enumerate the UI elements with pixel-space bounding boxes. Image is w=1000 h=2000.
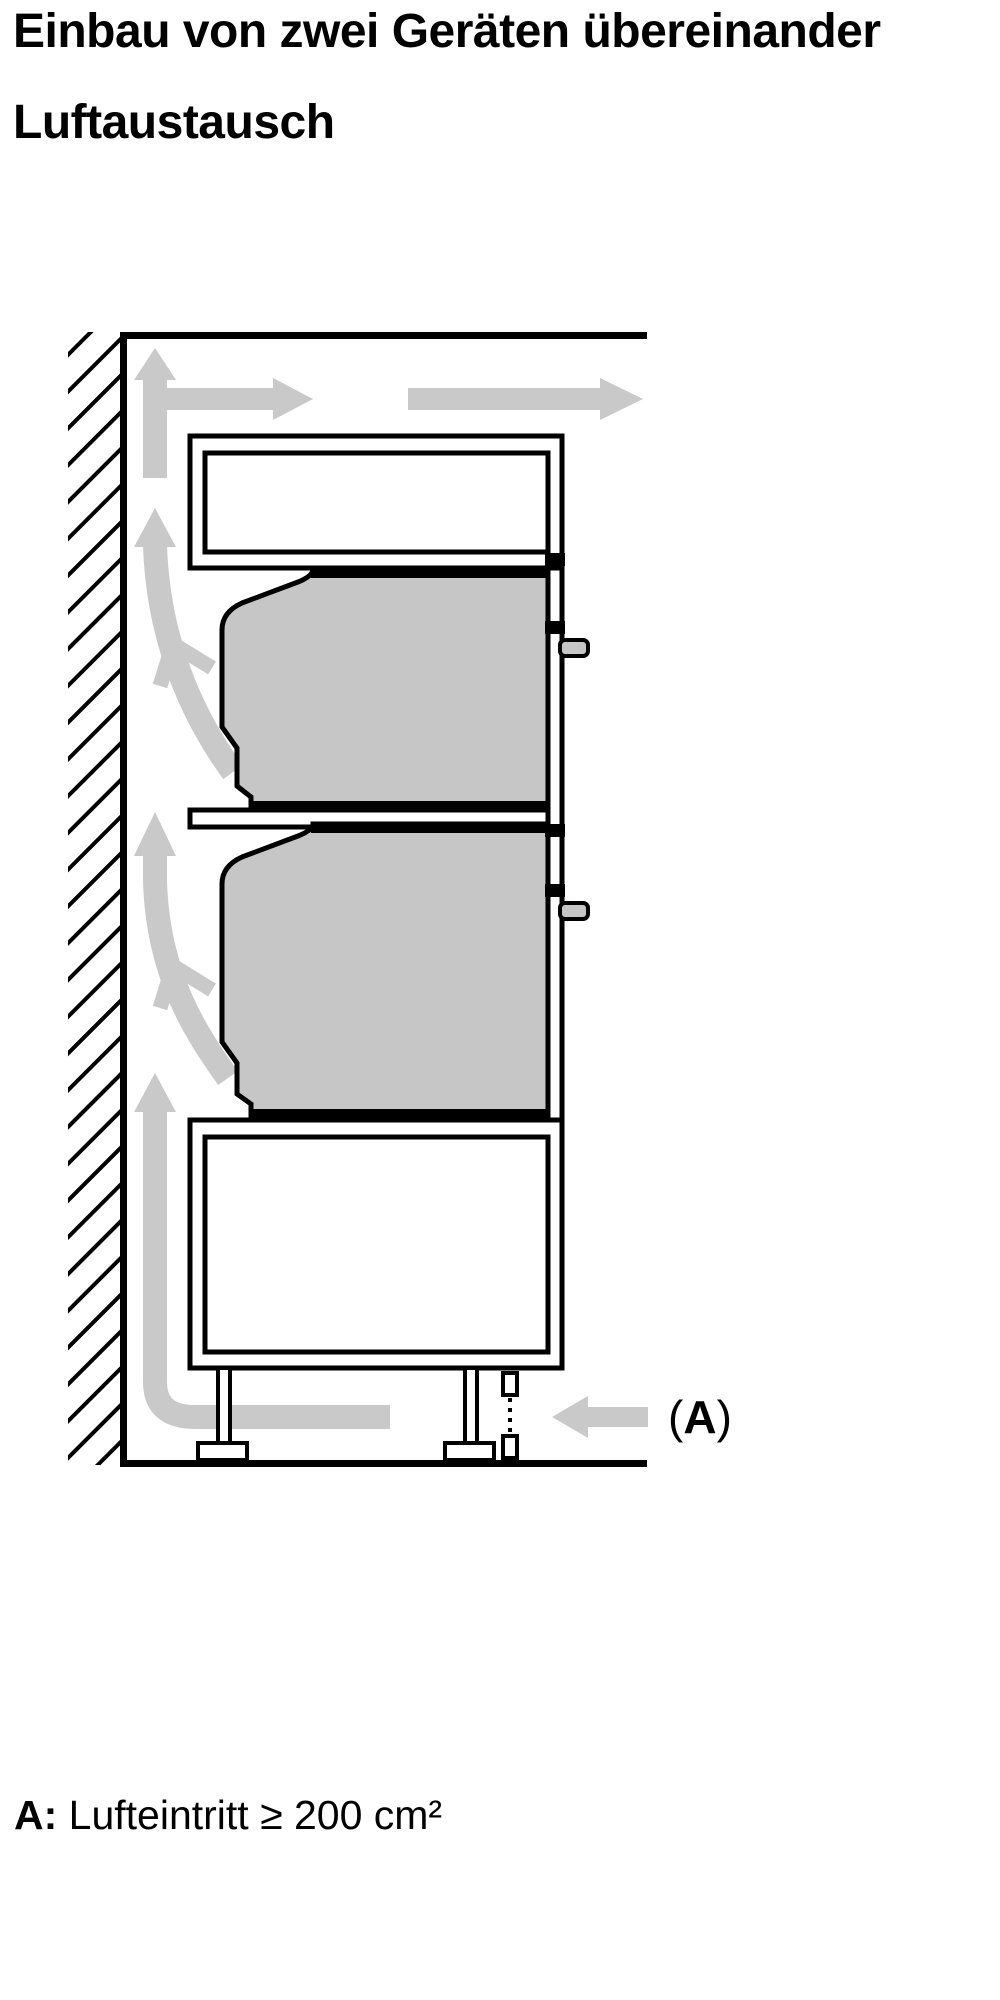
label-a-open-paren: ( bbox=[668, 1391, 683, 1443]
wall-hatching bbox=[68, 332, 120, 1465]
airflow-up-arrow-top bbox=[134, 348, 176, 478]
manual-page: Einbau von zwei Geräten übereinander Luf… bbox=[0, 0, 1000, 2000]
lower-oven bbox=[222, 824, 548, 1117]
upper-oven bbox=[222, 569, 548, 809]
legend-caption: A: Lufteintritt ≥ 200 cm² bbox=[14, 1792, 442, 1839]
legend-term: A: bbox=[14, 1792, 57, 1838]
mounting-bolt-upper bbox=[560, 640, 588, 656]
fixing-cap bbox=[545, 621, 565, 634]
air-inlet-arrow bbox=[552, 1396, 648, 1438]
air-inlet-label: (A) bbox=[668, 1390, 732, 1444]
fixing-cap bbox=[545, 553, 565, 566]
label-a-letter: A bbox=[683, 1391, 716, 1443]
upper-cabinet-compartment bbox=[190, 436, 562, 568]
lower-cabinet-compartment bbox=[190, 1120, 562, 1368]
leg bbox=[218, 1368, 230, 1444]
fixing-cap bbox=[545, 884, 565, 897]
legend-definition: Lufteintritt ≥ 200 cm² bbox=[57, 1792, 442, 1838]
foot bbox=[198, 1443, 247, 1460]
mounting-bolt-lower bbox=[560, 903, 588, 919]
airflow-right-arrow-1 bbox=[165, 378, 313, 420]
leg bbox=[465, 1368, 477, 1444]
installation-diagram bbox=[0, 0, 1000, 2000]
vent-block-bottom bbox=[503, 1436, 517, 1458]
foot bbox=[445, 1443, 494, 1460]
fixing-cap bbox=[545, 824, 565, 837]
airflow-curved-arrow-lower bbox=[134, 812, 228, 1078]
vent-block-top bbox=[503, 1373, 517, 1395]
label-a-close-paren: ) bbox=[717, 1391, 732, 1443]
airflow-right-arrow-2 bbox=[408, 378, 643, 420]
plinth-vent bbox=[503, 1373, 517, 1458]
